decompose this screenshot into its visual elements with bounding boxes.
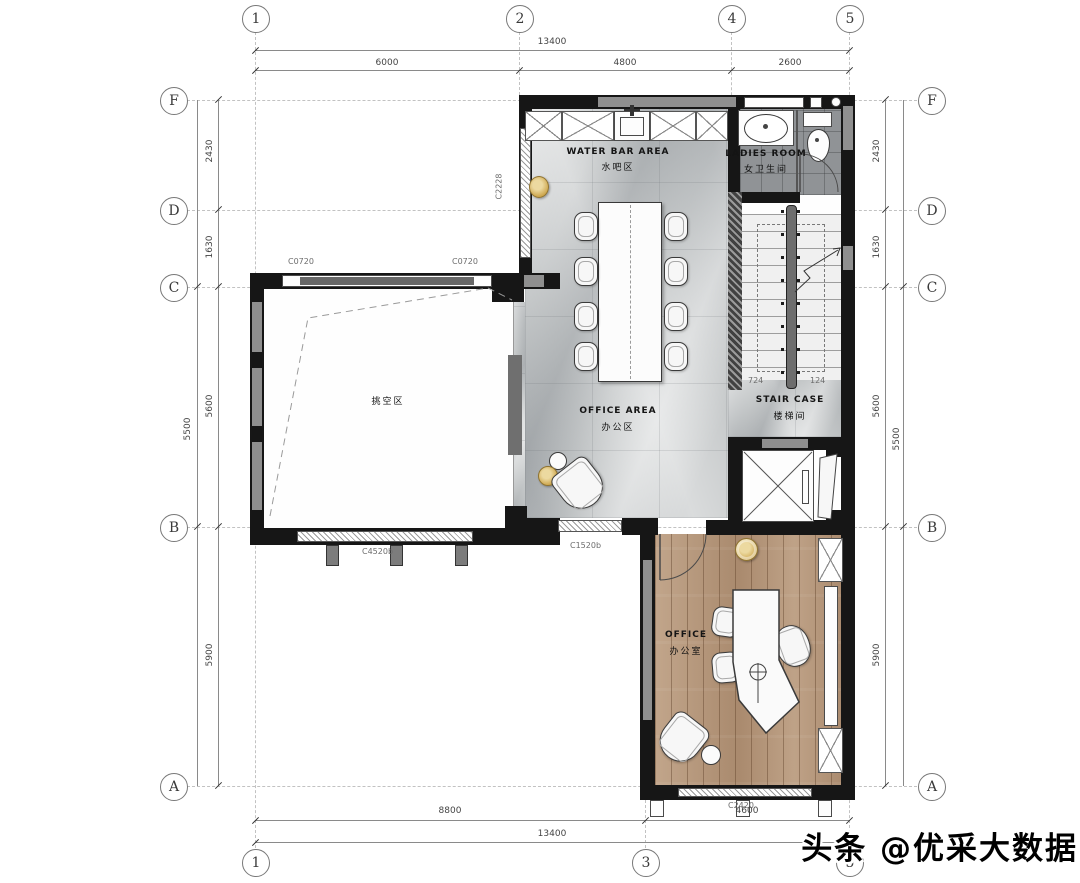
office-ceiling-light <box>735 538 758 561</box>
grid-bubble-left-a: A <box>160 773 188 801</box>
office-cabinet-top <box>818 538 843 582</box>
dim-line-bottom-total <box>255 842 849 843</box>
conference-chair <box>574 342 598 371</box>
room-label-water-bar-en: WATER BAR AREA <box>566 147 669 157</box>
window-top-glazing <box>598 97 736 107</box>
watermark: 头条 @优采大数据 <box>801 823 1078 868</box>
stair-rail <box>786 205 797 389</box>
window-c0720-sash <box>300 277 474 285</box>
grid-bubble-left-d: D <box>160 197 188 225</box>
room-label-office-en: OFFICE <box>665 630 707 640</box>
conference-chair <box>574 212 598 241</box>
stair-balusters-right <box>797 210 800 382</box>
waterbar-faucet-bar <box>624 109 640 111</box>
dim-top-1-2: 6000 <box>376 58 399 68</box>
waterbar-cabinet-1 <box>525 111 562 141</box>
conference-chair <box>664 302 688 331</box>
dim-right-f-d: 2430 <box>872 131 882 171</box>
mullion-stub-3 <box>455 545 468 566</box>
dim-top-total: 13400 <box>538 37 567 47</box>
void-left-glazing-1 <box>252 302 262 352</box>
grid-bubble-bottom-1: 1 <box>242 849 270 877</box>
ladies-wall-shelf <box>744 97 804 108</box>
dim-right-d-c: 1630 <box>872 227 882 267</box>
office-wall-top-right <box>706 520 855 535</box>
office-wall-left-glazing <box>643 560 652 720</box>
void-edge-panel <box>508 355 522 455</box>
ladies-wall-round-fixture <box>831 97 841 107</box>
dim-line-right-inner <box>885 100 886 786</box>
grid-bubble-right-b: B <box>918 514 946 542</box>
mullion-stub-1 <box>326 545 339 566</box>
dim-right-c-b: 5600 <box>872 386 882 426</box>
void-room-floor <box>264 289 513 528</box>
dim-left-outer: 5500 <box>183 409 193 449</box>
waterbar-tall-cabinet <box>696 111 728 141</box>
conference-chair <box>574 302 598 331</box>
grid-bubble-top-5: 5 <box>836 5 864 33</box>
office-side-table <box>701 745 721 765</box>
dim-left-d-c: 1630 <box>205 227 215 267</box>
tag-window-c4520b: C4520b <box>362 547 393 556</box>
tag-window-c2228: C2228 <box>495 167 504 207</box>
grid-bubble-right-f: F <box>918 87 946 115</box>
conference-chair <box>664 342 688 371</box>
grid-bubble-right-c: C <box>918 274 946 302</box>
wall-stair-left <box>728 192 742 390</box>
toilet-tank <box>803 112 832 127</box>
dim-left-c-b: 5600 <box>205 386 215 426</box>
dim-right-b-a: 5900 <box>872 635 882 675</box>
stair-balusters-left <box>781 210 784 382</box>
grid-bubble-right-a: A <box>918 773 946 801</box>
toilet-flush-dot <box>815 138 819 142</box>
wall-elevator-corner-top <box>826 437 855 457</box>
room-label-office-area-cn: 办公区 <box>601 420 634 433</box>
conference-table <box>598 202 662 382</box>
room-label-office-area-en: OFFICE AREA <box>579 406 656 416</box>
conference-chair <box>664 212 688 241</box>
dim-left-b-a: 5900 <box>205 635 215 675</box>
window-left-upper-hatch <box>520 128 531 258</box>
sink-faucet-dot <box>763 124 768 129</box>
table-centerline <box>630 205 631 379</box>
room-label-void-cn: 挑空区 <box>371 394 404 407</box>
grid-bubble-top-4: 4 <box>718 5 746 33</box>
tag-window-c0720-left: C0720 <box>288 257 314 266</box>
room-label-water-bar-cn: 水吧区 <box>601 160 634 173</box>
dim-line-top-segments <box>255 70 849 71</box>
dim-line-right-outer <box>903 100 904 786</box>
office-wall-right <box>841 535 855 800</box>
dim-top-2-4: 4800 <box>614 58 637 68</box>
dim-line-left-outer <box>197 100 198 786</box>
grid-bubble-right-d: D <box>918 197 946 225</box>
room-label-stair-en: STAIR CASE <box>756 395 825 405</box>
waterbar-sink-basin <box>620 117 644 136</box>
wall-right-glazing-1 <box>843 106 853 150</box>
office-cabinet-panel <box>824 586 838 726</box>
void-left-glazing-3 <box>252 442 262 510</box>
office-cabinet-bottom <box>818 728 843 773</box>
dim-bottom-1-3: 8800 <box>439 806 462 816</box>
column-c2 <box>492 273 524 302</box>
column-b2 <box>505 506 527 530</box>
room-label-stair-cn: 楼梯间 <box>773 409 806 422</box>
dim-line-top-total <box>255 50 849 51</box>
void-left-glazing-2 <box>252 368 262 426</box>
window-c2420-band <box>678 788 812 797</box>
conference-chair <box>574 257 598 286</box>
office-guest-chair <box>710 605 742 639</box>
dim-line-bottom-segments <box>255 820 849 821</box>
room-label-office-cn: 办公室 <box>669 644 702 657</box>
dim-line-left-inner <box>218 100 219 786</box>
wall-right <box>841 95 855 535</box>
grid-bubble-top-1: 1 <box>242 5 270 33</box>
tag-window-c0720-right: C0720 <box>452 257 478 266</box>
conference-chair <box>664 257 688 286</box>
plant-waterbar-corner <box>529 176 549 198</box>
pilaster-stub-3 <box>818 800 832 817</box>
office-guest-chair <box>711 651 742 684</box>
grid-bubble-left-f: F <box>160 87 188 115</box>
dim-bottom-total: 13400 <box>538 829 567 839</box>
elevator-counterweight <box>802 470 809 504</box>
floor-plan: WATER BAR AREA 水吧区 LADIES ROOM 女卫生间 OFFI… <box>0 0 1080 883</box>
room-label-ladies-cn: 女卫生间 <box>744 162 788 175</box>
grid-bubble-bottom-3: 3 <box>632 849 660 877</box>
window-c1520b-band <box>558 520 622 532</box>
grid-bubble-top-2: 2 <box>506 5 534 33</box>
wall-elevator-top-glazing <box>762 439 808 448</box>
waterbar-cabinet-3 <box>650 111 696 141</box>
pilaster-stub-1 <box>650 800 664 817</box>
dim-left-f-d: 2430 <box>205 131 215 171</box>
grid-bubble-left-b: B <box>160 514 188 542</box>
dim-top-4-5: 2600 <box>779 58 802 68</box>
grid-bubble-left-c: C <box>160 274 188 302</box>
stair-dim-left: 724 <box>748 376 763 385</box>
dim-bottom-3-5: 4600 <box>736 806 759 816</box>
window-c4520b-band <box>297 531 473 542</box>
stair-dim-right: 124 <box>810 376 825 385</box>
dim-right-outer: 5500 <box>892 419 902 459</box>
tag-window-c1520b: C1520b <box>570 541 601 550</box>
ladies-wall-fixture <box>810 97 822 108</box>
room-label-ladies-en: LADIES ROOM <box>725 149 806 159</box>
wall-right-glazing-2 <box>843 246 853 270</box>
wall-ladies-stair <box>736 192 800 203</box>
waterbar-cabinet-2 <box>562 111 614 141</box>
